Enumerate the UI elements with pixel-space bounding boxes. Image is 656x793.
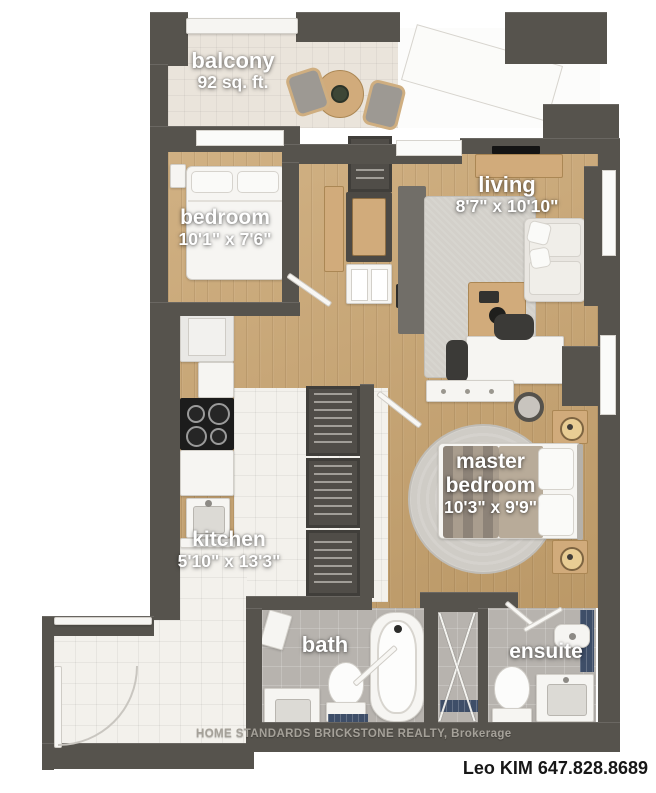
kitchen-label: kitchen 5'10" x 13'3" <box>150 528 308 572</box>
wall <box>296 12 400 42</box>
wall <box>424 596 438 724</box>
side-chair <box>446 340 468 382</box>
master-bedroom-label: master bedroom 10'3" x 9'9" <box>408 450 573 518</box>
media-wall <box>398 186 426 334</box>
ensuite-toilet <box>494 666 530 710</box>
soundbar-icon <box>492 146 540 154</box>
living-name: living <box>432 172 582 197</box>
living-dimensions: 8'7" x 10'10" <box>432 197 582 217</box>
wall <box>420 592 518 608</box>
office-chair <box>494 314 534 340</box>
cooktop <box>180 398 234 450</box>
kitchen-counter <box>180 450 234 496</box>
balcony-area: 92 sq. ft. <box>158 73 308 93</box>
kitchen-dimensions: 5'10" x 13'3" <box>150 552 308 572</box>
living-window <box>602 170 616 256</box>
bed-pillow <box>237 171 279 193</box>
agent-contact: Leo KIM 647.828.8689 <box>408 758 648 779</box>
plant-icon <box>331 85 349 103</box>
master-dresser <box>426 380 514 402</box>
desk <box>466 336 564 384</box>
lamp-icon <box>560 547 584 571</box>
bedroom-window <box>196 130 284 146</box>
wall <box>246 596 372 610</box>
pantry-cabinet <box>324 186 344 272</box>
wall <box>505 12 607 64</box>
kitchen-cabinet <box>198 362 234 398</box>
laundry-hamper <box>514 392 544 422</box>
bed-duvet-fold <box>188 200 284 202</box>
wall <box>478 608 488 724</box>
bath-label: bath <box>282 632 368 657</box>
wall <box>150 64 168 304</box>
bath-tile-mat <box>328 714 368 722</box>
sofa-pillow <box>528 246 551 269</box>
laundry-cabinet <box>346 264 392 304</box>
bedroom-dimensions: 10'1" x 7'6" <box>150 230 300 250</box>
ensuite-label: ensuite <box>498 640 594 664</box>
master-name-line2: bedroom <box>408 474 573 498</box>
storage-nook-shelf <box>352 198 386 256</box>
wall <box>150 302 300 316</box>
floor-plan: balcony 92 sq. ft. bedroom 10'1" x 7'6" … <box>0 0 656 793</box>
bedroom-nightstand <box>170 164 186 188</box>
living-label: living 8'7" x 10'10" <box>432 172 582 217</box>
ensuite-name: ensuite <box>498 640 594 664</box>
wall <box>42 743 254 769</box>
master-name-line1: master <box>408 450 573 474</box>
ensuite-vanity <box>536 674 594 722</box>
hall-closet-1 <box>306 386 360 456</box>
entry-half-wall-cap <box>54 617 152 625</box>
balcony-sliding-door <box>396 140 462 156</box>
wall <box>150 302 180 620</box>
bath-name: bath <box>282 632 368 657</box>
bed-pillow <box>191 171 233 193</box>
hall-closet-3 <box>306 530 360 596</box>
bedroom-label: bedroom 10'1" x 7'6" <box>150 206 300 250</box>
master-window <box>600 335 616 415</box>
fridge-top <box>188 318 226 356</box>
hall-closet-2 <box>306 458 360 528</box>
master-dimensions: 10'3" x 9'9" <box>408 498 573 518</box>
brokerage-watermark: HOME STANDARDS BRICKSTONE REALTY, Broker… <box>196 728 536 740</box>
balcony-name: balcony <box>158 48 308 73</box>
balcony-label: balcony 92 sq. ft. <box>158 48 308 93</box>
bedroom-name: bedroom <box>150 206 300 230</box>
lamp-icon <box>560 417 584 441</box>
balcony-railing <box>186 18 298 34</box>
kitchen-name: kitchen <box>150 528 308 552</box>
wall <box>360 384 374 598</box>
wall <box>246 608 262 724</box>
